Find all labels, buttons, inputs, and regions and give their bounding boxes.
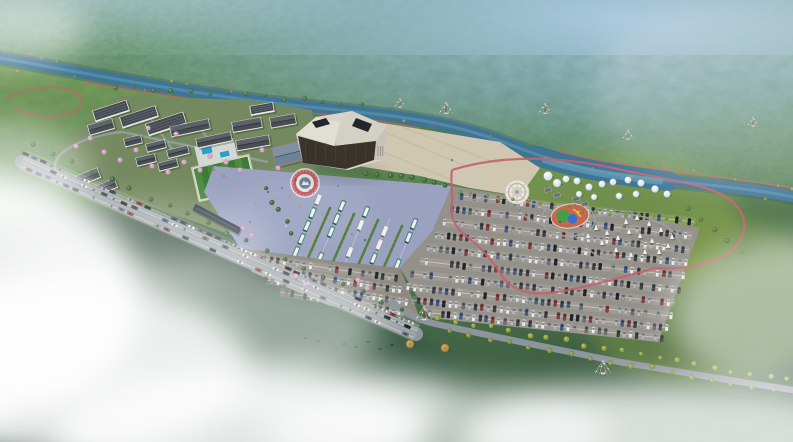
parking-car xyxy=(456,206,460,213)
parking-car xyxy=(510,318,514,325)
pedestrian xyxy=(330,221,331,223)
flag xyxy=(447,107,448,108)
bank-vegetation xyxy=(577,167,578,168)
parking-car xyxy=(605,306,609,313)
street-tree xyxy=(447,329,451,333)
parking-car xyxy=(468,277,472,284)
bank-vegetation xyxy=(16,70,19,73)
parking-car xyxy=(646,256,650,263)
flag xyxy=(424,309,425,310)
parking-car xyxy=(545,272,549,279)
tree-highlight xyxy=(375,173,377,175)
parking-car xyxy=(624,307,628,314)
parking-car xyxy=(474,222,478,229)
tree-highlight xyxy=(679,219,680,220)
parking-car xyxy=(450,261,454,268)
tree-highlight xyxy=(284,258,286,260)
pedestrian xyxy=(520,209,521,211)
dome-tent xyxy=(553,179,561,187)
flag xyxy=(418,314,419,315)
tree-highlight xyxy=(653,215,654,216)
parking-car xyxy=(687,218,691,225)
parking-car xyxy=(542,230,546,237)
parking-car xyxy=(468,208,472,215)
parking-car xyxy=(518,308,522,315)
parking-car xyxy=(486,224,490,231)
parking-car xyxy=(462,207,466,214)
parking-car xyxy=(626,281,630,288)
bank-vegetation xyxy=(157,76,160,79)
pedestrian xyxy=(275,198,276,200)
tree-highlight xyxy=(169,89,171,91)
parking-car xyxy=(432,287,436,294)
tree-highlight xyxy=(362,290,364,292)
parking-car xyxy=(445,288,449,295)
pedestrian xyxy=(338,185,339,187)
parking-car xyxy=(624,266,628,273)
dome-tent xyxy=(638,180,645,187)
parking-car xyxy=(553,245,557,252)
parking-car xyxy=(500,306,504,313)
tree-highlight xyxy=(570,352,572,354)
flag xyxy=(441,109,442,110)
flag xyxy=(445,105,446,106)
parking-car xyxy=(592,263,596,270)
parking-car xyxy=(605,237,609,244)
street-tree xyxy=(264,186,268,190)
tree-highlight xyxy=(528,199,530,201)
pedestrian xyxy=(312,209,313,211)
parking-car xyxy=(598,208,602,215)
flag xyxy=(448,107,449,108)
flag xyxy=(428,314,429,315)
parking-car xyxy=(598,263,602,270)
parking-car xyxy=(468,303,472,310)
parking-car xyxy=(530,229,534,236)
tree-highlight xyxy=(276,207,278,209)
parking-car xyxy=(494,280,498,287)
tree-highlight xyxy=(553,204,554,205)
tree-highlight xyxy=(564,337,567,340)
parking-car xyxy=(599,305,603,312)
parking-car xyxy=(611,264,615,271)
parking-car xyxy=(579,262,583,269)
parking-car xyxy=(454,301,458,308)
parking-car xyxy=(631,240,635,247)
parking-car xyxy=(538,311,542,318)
tree-highlight xyxy=(127,186,129,188)
parking-car xyxy=(509,254,513,261)
flag xyxy=(547,112,548,113)
parking-car xyxy=(640,255,644,262)
flag xyxy=(425,312,426,313)
parking-car xyxy=(462,263,466,270)
street-tree xyxy=(379,300,383,304)
parking-car xyxy=(566,324,570,331)
parking-car xyxy=(633,321,637,328)
street-tree xyxy=(189,89,193,93)
flag xyxy=(446,105,447,106)
parking-car xyxy=(505,212,509,219)
parking-car xyxy=(488,265,492,272)
parking-car xyxy=(518,213,522,220)
parking-car xyxy=(609,251,613,258)
tree-highlight xyxy=(508,340,510,342)
parking-car xyxy=(647,297,651,304)
flag xyxy=(399,102,400,103)
flag xyxy=(401,106,402,107)
parking-car xyxy=(535,321,539,328)
parking-car xyxy=(582,315,586,322)
bank-vegetation xyxy=(460,128,462,130)
parking-car xyxy=(448,301,452,308)
parking-car xyxy=(502,253,506,260)
flag xyxy=(421,315,422,316)
parking-car xyxy=(557,273,561,280)
parking-car xyxy=(503,294,507,301)
flag xyxy=(547,107,548,108)
pedestrian xyxy=(270,231,271,233)
tree-highlight xyxy=(432,181,434,183)
bank-vegetation xyxy=(489,134,492,137)
grazing-yak xyxy=(378,348,381,350)
parking-car xyxy=(584,326,588,333)
pedestrian xyxy=(560,221,561,223)
tree-highlight xyxy=(710,378,712,380)
parking-car xyxy=(662,244,666,251)
parking-car xyxy=(629,331,633,338)
pedestrian xyxy=(575,204,576,206)
parking-car xyxy=(532,270,536,277)
parking-car xyxy=(474,278,478,285)
flag xyxy=(401,104,402,105)
flag xyxy=(400,100,401,101)
tree-highlight xyxy=(265,187,267,189)
flag xyxy=(426,317,427,318)
parking-car xyxy=(627,320,631,327)
parking-car xyxy=(522,319,526,326)
parking-car xyxy=(563,314,567,321)
parking-car xyxy=(612,238,616,245)
parking-car xyxy=(528,297,532,304)
flag xyxy=(546,107,547,108)
bank-vegetation xyxy=(516,138,518,140)
flag xyxy=(550,111,551,112)
parking-car xyxy=(598,327,602,334)
parking-car xyxy=(579,303,583,310)
tree-highlight xyxy=(448,329,450,331)
parking-car xyxy=(448,275,452,282)
parking-car xyxy=(536,229,540,236)
parking-car xyxy=(684,232,688,239)
dome-tent xyxy=(591,194,597,200)
flag xyxy=(604,369,605,370)
flag xyxy=(395,105,396,106)
street-tree xyxy=(208,92,212,96)
flag xyxy=(603,363,604,364)
parking-car xyxy=(665,324,669,331)
parking-car xyxy=(490,251,494,258)
tree-highlight xyxy=(435,316,438,319)
street-tree xyxy=(699,218,703,222)
flag xyxy=(397,102,398,103)
parking-car xyxy=(566,246,570,253)
parking-car xyxy=(666,299,670,306)
parking-car xyxy=(487,210,491,217)
tree-highlight xyxy=(687,207,689,209)
parking-car xyxy=(481,209,485,216)
mandala-plaza xyxy=(505,180,529,204)
street-tree xyxy=(458,190,462,194)
street-tree xyxy=(360,102,364,106)
parking-car xyxy=(458,248,462,255)
tree-highlight xyxy=(629,364,631,366)
parking-car xyxy=(621,294,625,301)
parking-car xyxy=(496,294,500,301)
tree-highlight xyxy=(609,361,611,363)
flag xyxy=(398,100,399,101)
parking-car xyxy=(441,311,445,318)
parking-car xyxy=(480,223,484,230)
parking-car xyxy=(466,313,470,320)
tree-highlight xyxy=(152,89,154,91)
parking-car xyxy=(622,224,626,231)
parking-car xyxy=(658,284,662,291)
flag xyxy=(404,105,405,106)
pedestrian xyxy=(214,169,215,171)
parking-car xyxy=(500,280,504,287)
parking-car xyxy=(573,260,577,267)
flag xyxy=(606,366,607,367)
parking-car xyxy=(586,220,590,227)
parking-car xyxy=(521,255,525,262)
parking-car xyxy=(620,320,624,327)
tree-highlight xyxy=(650,365,652,367)
dome-tent xyxy=(616,193,622,199)
flag xyxy=(430,317,431,318)
flag xyxy=(607,368,608,369)
street-tree xyxy=(283,257,287,261)
parking-car xyxy=(484,315,488,322)
flag xyxy=(601,366,602,367)
pedestrian xyxy=(262,185,263,187)
parking-car xyxy=(577,247,581,254)
parking-car xyxy=(478,315,482,322)
parking-car xyxy=(526,269,530,276)
parking-car xyxy=(513,268,517,275)
pedestrian xyxy=(255,203,256,205)
parking-car xyxy=(534,257,538,264)
flag xyxy=(402,102,403,103)
street-tree xyxy=(289,231,293,235)
pedestrian xyxy=(365,239,366,241)
pedestrian xyxy=(296,179,297,181)
tree-highlight xyxy=(303,97,305,99)
parking-car xyxy=(461,302,465,309)
street-tree xyxy=(341,282,345,286)
tree-highlight xyxy=(498,198,499,199)
flag xyxy=(545,105,546,106)
parking-car xyxy=(522,296,526,303)
parking-car xyxy=(483,292,487,299)
parking-car xyxy=(615,293,619,300)
parking-car xyxy=(541,299,545,306)
flag xyxy=(597,368,598,369)
parking-car xyxy=(576,314,580,321)
flag xyxy=(443,111,444,112)
parking-car xyxy=(589,316,593,323)
tree-highlight xyxy=(342,282,344,284)
parking-car xyxy=(595,317,599,324)
parking-car xyxy=(482,265,486,272)
dome-tent xyxy=(599,181,606,188)
parking-car xyxy=(455,276,459,283)
flag xyxy=(451,111,452,112)
flag xyxy=(444,104,445,105)
parking-car xyxy=(534,297,538,304)
parking-car xyxy=(506,268,510,275)
bank-vegetation xyxy=(377,113,378,114)
parking-car xyxy=(413,284,417,291)
flag xyxy=(422,312,423,313)
parking-car xyxy=(636,240,640,247)
flag xyxy=(543,109,544,110)
parking-car xyxy=(656,311,660,318)
parking-car xyxy=(506,307,510,314)
parking-car xyxy=(620,280,624,287)
pedestrian xyxy=(318,195,319,197)
pedestrian xyxy=(232,168,233,170)
flag xyxy=(600,363,601,364)
flag xyxy=(442,107,443,108)
bank-vegetation xyxy=(55,60,57,62)
parking-car xyxy=(660,335,664,342)
parking-car xyxy=(583,289,587,296)
dome-tent xyxy=(563,176,570,183)
tree-highlight xyxy=(658,356,660,358)
bank-vegetation xyxy=(630,175,632,177)
parking-car xyxy=(633,281,637,288)
parking-car xyxy=(622,331,626,338)
tree-highlight xyxy=(692,362,694,364)
pedestrian xyxy=(224,175,225,177)
parking-car xyxy=(541,322,545,329)
tree-highlight xyxy=(539,202,540,203)
parking-car xyxy=(566,259,570,266)
parking-car xyxy=(469,263,473,270)
tree-highlight xyxy=(360,103,362,105)
parking-car xyxy=(518,227,522,234)
flag xyxy=(447,104,448,105)
tree-highlight xyxy=(489,324,491,326)
parking-car xyxy=(425,258,429,265)
parking-car xyxy=(504,226,508,233)
flag xyxy=(398,106,399,107)
tree-highlight xyxy=(548,349,550,351)
tree-highlight xyxy=(458,190,460,192)
bank-vegetation xyxy=(605,172,607,174)
street-tree xyxy=(443,183,447,187)
pedestrian xyxy=(600,229,601,231)
parking-car xyxy=(675,216,679,223)
flag xyxy=(605,371,606,372)
pedestrian xyxy=(452,159,453,161)
flag xyxy=(421,317,422,318)
tree-highlight xyxy=(582,344,585,347)
pedestrian xyxy=(268,191,269,193)
flag xyxy=(544,105,545,106)
flag xyxy=(602,363,603,364)
parking-car xyxy=(532,284,536,291)
street-tree xyxy=(244,92,248,96)
flag xyxy=(542,112,543,113)
bank-vegetation xyxy=(431,124,434,127)
parking-car xyxy=(641,296,645,303)
parking-car xyxy=(628,294,632,301)
parking-car xyxy=(456,261,460,268)
parking-car xyxy=(670,286,674,293)
parking-car xyxy=(539,285,543,292)
parking-car xyxy=(503,239,507,246)
parking-car xyxy=(564,273,568,280)
parking-car xyxy=(429,272,433,279)
parking-car xyxy=(541,257,545,264)
parking-car xyxy=(406,283,410,290)
tree-highlight xyxy=(244,92,246,94)
parking-car xyxy=(602,317,606,324)
parking-car xyxy=(596,291,600,298)
parking-car xyxy=(475,209,479,216)
dome-tent xyxy=(633,191,639,197)
flag xyxy=(541,109,542,110)
parking-car xyxy=(526,283,530,290)
street-tree xyxy=(301,266,305,270)
tree-highlight xyxy=(489,338,491,340)
tree-highlight xyxy=(264,94,265,95)
parking-car xyxy=(652,284,656,291)
flag xyxy=(447,109,448,110)
flag xyxy=(427,312,428,313)
bank-vegetation xyxy=(212,86,214,88)
parking-car xyxy=(577,289,581,296)
parking-car xyxy=(528,242,532,249)
bank-vegetation xyxy=(403,119,406,122)
pedestrian xyxy=(540,249,541,251)
parking-car xyxy=(609,292,613,299)
parking-car xyxy=(497,317,501,324)
parking-car xyxy=(658,324,662,331)
parking-car xyxy=(547,244,551,251)
bank-vegetation xyxy=(170,80,173,83)
bank-vegetation xyxy=(201,84,203,86)
dome-tent xyxy=(576,191,582,197)
parking-car xyxy=(631,308,635,315)
parking-car xyxy=(515,295,519,302)
tree-highlight xyxy=(454,320,456,322)
parking-car xyxy=(553,300,557,307)
parking-car xyxy=(464,249,468,256)
parking-car xyxy=(447,233,451,240)
parking-car xyxy=(499,211,503,218)
parking-car xyxy=(602,251,606,258)
parking-car xyxy=(556,312,560,319)
tree-highlight xyxy=(133,85,134,86)
parking-car xyxy=(646,322,650,329)
parking-car xyxy=(461,220,465,227)
parking-car xyxy=(516,319,520,326)
tree-highlight xyxy=(581,210,582,211)
flag xyxy=(403,103,404,104)
